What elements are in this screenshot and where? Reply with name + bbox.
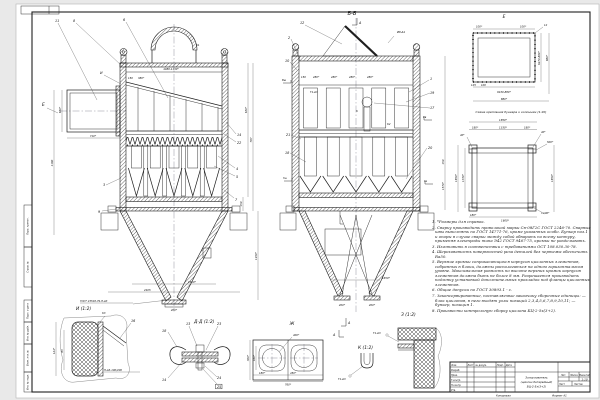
dim-label: 450* (290, 371, 297, 375)
stamp-col: Лист (467, 364, 474, 367)
pos-label: 13 (186, 322, 190, 326)
dim-label: 1330* (499, 126, 508, 130)
dim-label: 280* (349, 75, 356, 79)
dim-label: 630* (244, 106, 248, 113)
stamp-label: Листов (573, 383, 583, 386)
stamp-label: Лист (558, 383, 565, 386)
note-item: 4. Шероховатость поверхностей реза детал… (432, 250, 591, 259)
dim-label: 12 (544, 23, 548, 27)
doc-title: БЦ-2-5х(3+2) (527, 385, 546, 389)
dim-label: 1850* (454, 173, 458, 182)
dim-label: 2405 (144, 288, 151, 292)
pos-label: 5 (236, 175, 238, 179)
view-title: Е (503, 14, 506, 20)
pos-label: 16 (131, 319, 135, 323)
stamp-label: Лит. (560, 374, 567, 377)
margin-stamp: Подп. и дата (27, 303, 30, 319)
drawing-sheet: Перв. примен. Справ. № Подп. и дата Инв.… (0, 0, 600, 400)
weld-note: ГОСТ 23518-79-П-Δ3 (80, 299, 108, 303)
dim-label: 880* (545, 54, 549, 61)
dim-label: 125 (471, 83, 476, 87)
stamp-row: Т.контр. (451, 379, 461, 382)
dim-label: 180* (259, 371, 266, 375)
dim-label: 180* (524, 126, 531, 130)
doc-title: Золоуловитель (525, 376, 548, 380)
weld-label: К1 (196, 43, 200, 47)
level-mark: Вв (423, 115, 427, 119)
pos-label: 2 (288, 36, 290, 40)
dim-label: ∟100* (541, 211, 550, 215)
note-item: 1. *Размеры для справок. (432, 220, 591, 225)
note-item: 8. Произвести контрольную сборку циклона… (432, 309, 591, 314)
pos-label: 11 (55, 19, 59, 23)
dim-label: 710* (90, 134, 97, 138)
dim-label: 280* (331, 75, 338, 79)
stamp-row: Утв. (451, 389, 456, 392)
note-item: 2. Сварку производить проволокой марки С… (432, 226, 591, 244)
dim-label: 787 (249, 137, 253, 142)
dim-label: 6470-880* (537, 50, 541, 64)
top-plate (120, 63, 228, 67)
margin-stamp: Взам. инв. № (27, 350, 30, 366)
dim-label: 1650* (382, 276, 391, 280)
dim-label: 100 (481, 83, 486, 87)
weld-label: К3 (102, 311, 106, 315)
dim-label: 150 (239, 201, 243, 206)
stamp-col: Дата (505, 364, 513, 367)
drawing-canvas: Перв. примен. Справ. № Подп. и дата Инв.… (0, 0, 600, 400)
pos-label: 10 (285, 59, 289, 63)
dim-label: 1570* (441, 181, 445, 190)
dim-label: 880* (501, 97, 508, 101)
weld-label: Т1-Δ3 (310, 90, 318, 94)
dim-label: 150 (301, 75, 306, 79)
dim-label: 40* (541, 130, 546, 134)
dim-label: 380* (138, 76, 145, 80)
section-title: Б-Б (348, 11, 357, 17)
pos-label: 19 (430, 91, 434, 95)
glue-note: Н-Δ3-100/200 (104, 368, 122, 372)
margin-stamp: Справ. № (27, 261, 30, 273)
title-block: Изм. Лист № докум. Подп. Дата Разраб. Пр… (450, 362, 591, 398)
dim-label: 180* (470, 213, 477, 217)
stamp-label: Формат А1 (552, 394, 567, 398)
dim-label: 500* (547, 140, 554, 144)
note-item: 7. Законсервированные, поставляемые зака… (432, 294, 591, 308)
pos-label: 14 (237, 133, 241, 137)
stamp-row: Пров. (451, 374, 458, 377)
right-wall (222, 63, 228, 211)
pos-label: 22 (237, 141, 241, 145)
margin-stamp: Инв. № подл. (27, 374, 30, 390)
dim-label: 40* (460, 133, 465, 137)
detail-title: И (1:2) (76, 306, 91, 312)
level-mark: Вш (282, 78, 287, 82)
dim-label: 280* (313, 75, 320, 79)
dim-label: 650* (58, 106, 62, 113)
pos-label: 25 (217, 385, 221, 389)
dim-label: 1330* (461, 173, 465, 182)
weld-label: К2 (387, 122, 391, 126)
dim-label: 6430-880* (497, 90, 511, 94)
doc-title: (циклон батарейный) (521, 380, 553, 384)
dim-label: 100* (476, 25, 483, 29)
weld-label: Т1-Δ3 (373, 331, 381, 335)
stamp-label: Копировал (496, 394, 511, 398)
view-title: Ж (289, 321, 295, 327)
pos-label: 9 (98, 210, 100, 214)
level-mark: Гв (424, 179, 427, 183)
note-item: 5. Верхние кромки соприкасающихся корпус… (432, 260, 591, 287)
stamp-label: Масса (570, 374, 578, 377)
left-wall (120, 63, 126, 211)
dim-label: 1180 (50, 159, 54, 166)
stamp-col: № докум. (475, 364, 488, 367)
dim-label: 4080-1130* (163, 67, 179, 71)
dim-label: 400* (293, 333, 300, 337)
dim-label: 760* (285, 383, 292, 387)
dim-label: 1650* (188, 280, 197, 284)
margin-stamp: Инв. № дубл. (27, 325, 30, 341)
pos-label: 12 (300, 21, 304, 25)
dim-label: 124* (52, 347, 56, 354)
stamp-row: Разраб. (451, 369, 460, 372)
scheme-caption: Схема крепления бункера к колоннам (1:20… (476, 110, 547, 114)
dim-label: 83 (60, 349, 64, 353)
detail-title: З (1:2) (401, 312, 416, 318)
pos-label: 24 (217, 376, 221, 380)
pos-label: 3 (103, 183, 105, 187)
pos-label: 20 (428, 146, 432, 150)
dim-label: 1450* (254, 251, 258, 260)
sheet-frame: Перв. примен. Справ. № Подп. и дата Инв.… (16, 4, 599, 398)
view-label: Е (42, 102, 45, 108)
level-mark: Гш (283, 176, 287, 180)
stamp-label: Масштаб (579, 374, 590, 377)
dim-label: 150 (128, 76, 133, 80)
dim-label: 200* (339, 303, 346, 307)
scale-value: 1:10 (581, 378, 588, 382)
pos-label: 1 (430, 77, 432, 81)
dim-label: 300* (246, 354, 250, 361)
pos-label: 23 (217, 322, 221, 326)
weld-label: К (356, 109, 358, 113)
dim-label: 200* (369, 303, 376, 307)
dim-label: 1850* (550, 173, 554, 182)
detail-title: К (1:2) (358, 345, 373, 351)
dim-label: 150 (441, 159, 445, 164)
dim-label: 160* (252, 354, 256, 361)
dim-label: 1850* (499, 118, 508, 122)
stamp-col: Изм. (452, 364, 458, 367)
dim-label: 280* (367, 75, 374, 79)
margin-stamp: Перв. примен. (27, 217, 30, 235)
weld-label: Т1-Δ3 (338, 377, 346, 381)
detail-title: Д-Д (1:2) (193, 319, 215, 325)
dim-label: 100* (520, 25, 527, 29)
dim-label: 200* (171, 308, 178, 312)
stamp-row: Н.контр. (451, 384, 462, 387)
stamp-col: Подп. (497, 364, 504, 367)
pos-label: 21 (286, 133, 290, 137)
dim-label: 180* (472, 126, 479, 130)
pos-label: 14 (162, 378, 166, 382)
pos-label: 4 (236, 167, 238, 171)
technical-notes: 1. *Размеры для справок. 2. Сварку произ… (432, 220, 591, 314)
pos-label: 6 (123, 18, 125, 22)
